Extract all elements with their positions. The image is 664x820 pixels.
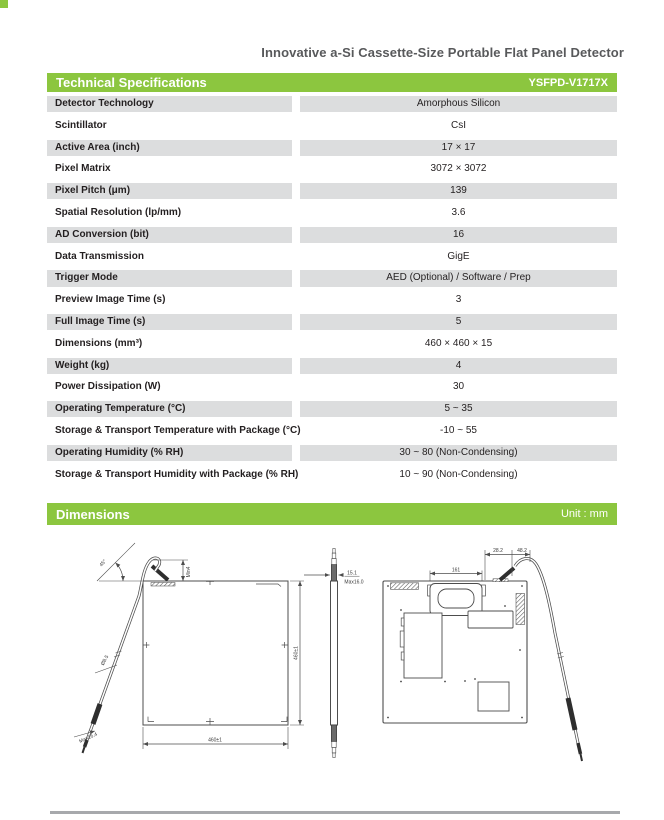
spec-value: 460 × 460 × 15 [300, 336, 617, 352]
spec-label: Operating Humidity (% RH) [47, 445, 292, 461]
handle-width-label: 161 [452, 568, 461, 574]
spec-row: Operating Humidity (% RH) 30 ~ 80 (Non-C… [47, 445, 617, 461]
spec-value: Amorphous Silicon [300, 96, 617, 112]
spec-row: AD Conversion (bit) 16 [47, 227, 617, 243]
spec-row: Operating Temperature (°C) 5 ~ 35 [47, 401, 617, 417]
spec-row: Dimensions (mm³) 460 × 460 × 15 [47, 336, 617, 352]
spec-label: Spatial Resolution (lp/mm) [47, 205, 292, 221]
unit-label: Unit : mm [561, 508, 608, 520]
spec-label: Dimensions (mm³) [47, 336, 292, 352]
spec-label: Storage & Transport Humidity with Packag… [47, 467, 292, 483]
front-height-label: 460±1 [294, 646, 300, 660]
page-corner-mark [0, 0, 8, 8]
spec-row: Full Image Time (s) 5 [47, 314, 617, 330]
spec-row: Scintillator CsI [47, 118, 617, 134]
spec-value: 17 × 17 [300, 140, 617, 156]
page-bottom-rule [50, 811, 620, 814]
back-view-drawing: 161 28.2 48.2 [383, 548, 582, 761]
spec-row: Trigger Mode AED (Optional) / Software /… [47, 270, 617, 286]
spec-label: Pixel Matrix [47, 161, 292, 177]
cable-diameter-label: Ø8.5 [100, 654, 110, 667]
spec-value: 3 [300, 292, 617, 308]
spec-value: 16 [300, 227, 617, 243]
spec-value: 30 [300, 379, 617, 395]
spec-value: AED (Optional) / Software / Prep [300, 270, 617, 286]
model-number: YSFPD-V1717X [529, 77, 608, 89]
spec-value: 3072 × 3072 [300, 161, 617, 177]
front-view-drawing: 45° Min4 Ø8.5 Max16.4 460±1 460±1 [74, 543, 304, 753]
page-title: Innovative a-Si Cassette-Size Portable F… [261, 45, 624, 60]
spec-label: Active Area (inch) [47, 140, 292, 156]
spec-value: 4 [300, 358, 617, 374]
spec-row: Storage & Transport Humidity with Packag… [47, 467, 617, 483]
spec-row: Spatial Resolution (lp/mm) 3.6 [47, 205, 617, 221]
spec-label: Trigger Mode [47, 270, 292, 286]
spec-value: 139 [300, 183, 617, 199]
spec-value: GigE [300, 249, 617, 265]
side-thickness-label: 15.1 [347, 571, 357, 577]
cable-offset1-label: 28.2 [493, 548, 503, 554]
spec-label: AD Conversion (bit) [47, 227, 292, 243]
spec-value: 3.6 [300, 205, 617, 221]
spec-row: Storage & Transport Temperature with Pac… [47, 423, 617, 439]
side-max-label: Max16.0 [344, 580, 363, 586]
dimensions-header-bar: Dimensions Unit : mm [47, 503, 617, 525]
spec-label: Weight (kg) [47, 358, 292, 374]
technical-specifications-header-bar: Technical Specifications YSFPD-V1717X [47, 73, 617, 92]
spec-label: Operating Temperature (°C) [47, 401, 292, 417]
spec-value: 30 ~ 80 (Non-Condensing) [300, 445, 617, 461]
spec-row: Active Area (inch) 17 × 17 [47, 140, 617, 156]
spec-label: Data Transmission [47, 249, 292, 265]
cable-angle-label: 45° [99, 559, 108, 569]
spec-value: -10 ~ 55 [300, 423, 617, 439]
spec-label: Scintillator [47, 118, 292, 134]
spec-value: 5 ~ 35 [300, 401, 617, 417]
spec-label: Storage & Transport Temperature with Pac… [47, 423, 292, 439]
spec-label: Detector Technology [47, 96, 292, 112]
spec-label: Preview Image Time (s) [47, 292, 292, 308]
spec-value: 10 ~ 90 (Non-Condensing) [300, 467, 617, 483]
spec-value: 5 [300, 314, 617, 330]
cable-exit-min-label: Min4 [186, 566, 192, 577]
spec-row: Weight (kg) 4 [47, 358, 617, 374]
dimensions-title: Dimensions [56, 507, 130, 522]
side-view-drawing: 15.1 Max16.0 [304, 549, 364, 758]
spec-label: Power Dissipation (W) [47, 379, 292, 395]
spec-label: Full Image Time (s) [47, 314, 292, 330]
spec-label: Pixel Pitch (μm) [47, 183, 292, 199]
spec-row: Power Dissipation (W) 30 [47, 379, 617, 395]
spec-table: Detector Technology Amorphous Silicon Sc… [47, 96, 617, 488]
cable-offset2-label: 48.2 [517, 548, 527, 554]
spec-row: Preview Image Time (s) 3 [47, 292, 617, 308]
dimension-drawings: 45° Min4 Ø8.5 Max16.4 460±1 460±1 [47, 533, 617, 785]
spec-row: Data Transmission GigE [47, 249, 617, 265]
spec-value: CsI [300, 118, 617, 134]
spec-row: Pixel Matrix 3072 × 3072 [47, 161, 617, 177]
spec-row: Detector Technology Amorphous Silicon [47, 96, 617, 112]
front-width-label: 460±1 [208, 738, 222, 744]
spec-row: Pixel Pitch (μm) 139 [47, 183, 617, 199]
technical-specifications-title: Technical Specifications [56, 75, 207, 90]
